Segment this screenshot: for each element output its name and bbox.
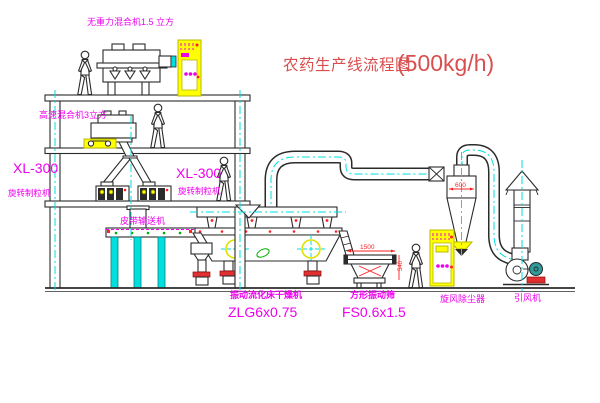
gravity-mixer-label: 无重力混合机1.5 立方 xyxy=(87,16,174,27)
dryer-foot xyxy=(304,261,321,284)
worker-figure xyxy=(409,244,423,287)
fluid-bed-dryer xyxy=(192,207,342,284)
screen-label: 方形振动筛 xyxy=(350,289,395,300)
dryer-risers xyxy=(207,217,332,228)
granulator-model-left-label: XL-300 xyxy=(13,160,58,176)
dryer-foot xyxy=(220,261,237,284)
cyclone-label: 旋风除尘器 xyxy=(440,293,485,304)
gravity-mixer xyxy=(97,44,176,95)
fan-motor-icon xyxy=(530,263,543,276)
diagram-svg: 600 1500 540 农药生产线流程图 (500kg/h) 无重力混合机1.… xyxy=(0,0,600,403)
dryer-model-label: ZLG6x0.75 xyxy=(228,304,297,320)
diagram-title: 农药生产线流程图 xyxy=(283,56,411,74)
control-cabinet-right xyxy=(430,230,454,286)
fan-label: 引风机 xyxy=(514,292,541,303)
dryer-to-cyclone-duct xyxy=(271,157,440,215)
belt-conveyor-label: 皮带输送机 xyxy=(120,215,165,226)
worker-figure xyxy=(78,51,92,94)
rotary-granulator-right xyxy=(138,182,171,201)
granulator-model-right-label: XL-300 xyxy=(176,165,221,181)
capacity-label: (500kg/h) xyxy=(397,50,494,76)
dryer-label: 振动流化床干燥机 xyxy=(230,289,302,300)
high-speed-mixer-label: 高速混合机3立方 xyxy=(39,109,107,120)
discharge-cap-icon xyxy=(171,56,176,67)
control-cabinet-top xyxy=(178,40,201,96)
fan-volute-icon xyxy=(506,259,528,281)
y-chute xyxy=(102,156,152,184)
cyclone-diameter-dim: 600 xyxy=(455,182,466,189)
screen-model-label: FS0.6x1.5 xyxy=(342,304,406,320)
inlet-damper-valve-icon xyxy=(429,167,444,181)
ground-line xyxy=(45,288,575,292)
worker-figure xyxy=(151,104,165,147)
screen-length-dim: 1500 xyxy=(360,244,375,251)
vibrating-screen xyxy=(344,255,396,288)
granulator-right-label: 旋转制粒机 xyxy=(178,186,221,196)
granulator-left-label: 旋转制粒机 xyxy=(8,188,51,198)
cad-flow-diagram: 600 1500 540 农药生产线流程图 (500kg/h) 无重力混合机1.… xyxy=(0,0,600,403)
screen-height-dim: 540 xyxy=(398,260,404,271)
rotary-granulator-left xyxy=(96,182,129,201)
